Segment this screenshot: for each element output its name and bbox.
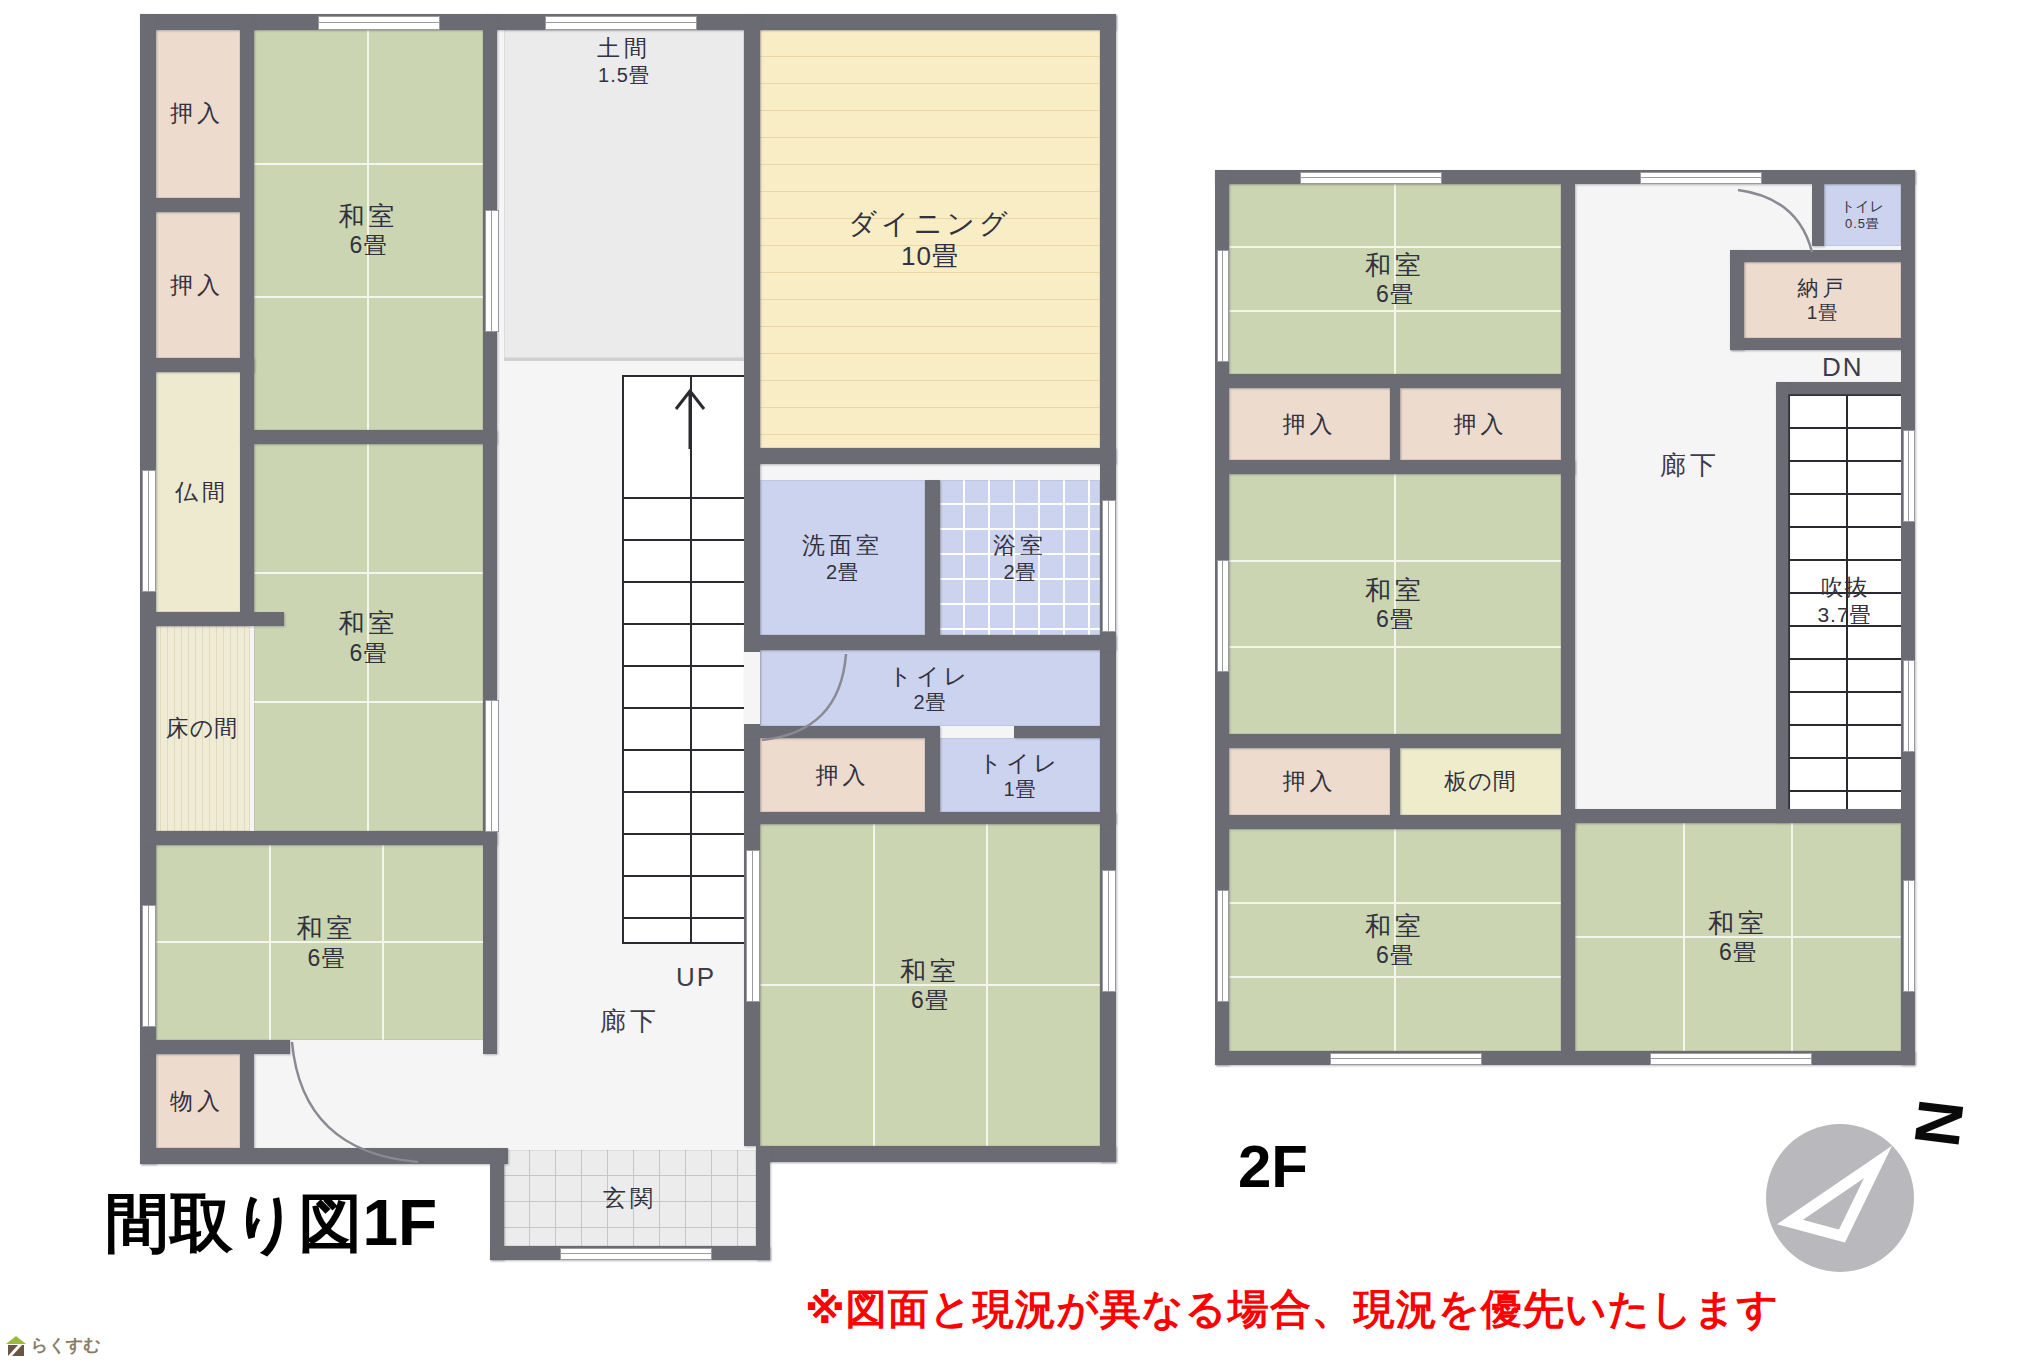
window-marker (1903, 880, 1915, 992)
compass-north-letter: N (1900, 1096, 1979, 1151)
window-marker (142, 470, 156, 592)
room-itanoma: 板の間 (1400, 748, 1561, 815)
room-monoire: 物入 (154, 1054, 240, 1148)
wall-segment (925, 738, 940, 812)
window-marker (1217, 890, 1229, 1002)
wall-segment (140, 1040, 290, 1054)
wall-segment (1014, 726, 1100, 738)
window-marker (485, 210, 499, 332)
room-name: 和室 (297, 912, 357, 945)
logo-text: らくすむ (31, 1334, 101, 1357)
wall-segment (154, 198, 240, 212)
room-name: 和室 (1365, 249, 1425, 282)
stair-steps (624, 457, 758, 942)
room-size: 2畳 (913, 690, 946, 714)
window-marker (746, 850, 760, 1002)
room-name: 納戸 (1798, 275, 1848, 301)
wall-segment (756, 1146, 1116, 1162)
room-size: 6畳 (1376, 606, 1414, 634)
window-marker (1102, 500, 1116, 632)
room-size: 6畳 (1719, 939, 1757, 967)
wall-segment (140, 1148, 508, 1164)
room-fukinuke-label: 吹抜 3.7畳 (1788, 550, 1901, 650)
room-name: 浴室 (993, 531, 1047, 560)
room-washitsu-1f-mid: 和室 6畳 (254, 444, 483, 831)
window-marker (1903, 660, 1915, 752)
up-label: UP (676, 962, 716, 993)
room-size: 2畳 (1003, 560, 1036, 584)
window-marker (1217, 560, 1229, 672)
room-name: ダイニング (848, 206, 1011, 241)
room-oshiire-2f-b: 押入 (1400, 388, 1561, 460)
room-name: 和室 (339, 200, 399, 233)
room-washitsu-2f-bottomleft: 和室 6畳 (1229, 829, 1561, 1051)
room-oshiire-2f-a: 押入 (1229, 388, 1390, 460)
wall-segment (1730, 250, 1744, 350)
disclaimer-note: ※図面と現況が異なる場合、現況を優先いたします (805, 1282, 1779, 1337)
floor1-title: 間取り図1F (105, 1180, 437, 1267)
room-name: トイレ (1841, 198, 1884, 216)
wall-segment (1812, 184, 1824, 246)
wall-segment (154, 358, 254, 372)
window-marker (485, 700, 499, 832)
wall-segment (140, 831, 497, 845)
room-size: 3.7畳 (1817, 602, 1871, 627)
wall-segment (490, 1148, 504, 1260)
room-washitsu-1f-bottomright: 和室 6畳 (760, 824, 1100, 1146)
wall-segment (1776, 382, 1788, 822)
window-marker (1217, 250, 1229, 362)
door-marker (560, 1248, 712, 1260)
room-name: 押入 (1283, 767, 1337, 796)
wall-segment (1390, 748, 1400, 815)
room-size: 2畳 (826, 560, 859, 584)
room-size: 6畳 (308, 945, 346, 973)
room-name: 押入 (170, 271, 224, 300)
door-opening (744, 652, 760, 724)
wall-segment (744, 448, 1116, 464)
room-washitsu-1f-bottomleft: 和室 6畳 (156, 845, 497, 1040)
wall-segment (1390, 388, 1400, 460)
room-size: 6畳 (350, 640, 388, 668)
wall-segment (756, 1146, 770, 1260)
wall-segment (1776, 382, 1901, 394)
wall-segment (744, 635, 1116, 650)
room-name: 和室 (1365, 910, 1425, 943)
wall-segment (154, 612, 284, 626)
room-oshiire-2f-c: 押入 (1229, 748, 1390, 815)
wall-segment (1730, 338, 1901, 350)
wall-segment (240, 14, 254, 614)
window-marker (1102, 870, 1116, 992)
room-genkan: 玄関 (504, 1150, 756, 1246)
room-yokushitsu: 浴室 2畳 (940, 480, 1100, 635)
stairs-1f (622, 375, 760, 944)
room-washitsu-2f-bottomright: 和室 6畳 (1575, 823, 1901, 1051)
room-name: 土間 (597, 34, 651, 63)
room-name: 押入 (170, 99, 224, 128)
room-name: 玄関 (603, 1184, 657, 1213)
room-toilet-1jo: トイレ 1畳 (940, 738, 1100, 812)
room-name: 押入 (816, 761, 870, 790)
room-tokonoma: 床の間 (154, 626, 250, 831)
room-nando: 納戸 1畳 (1744, 262, 1901, 338)
room-butsuma: 仏間 (154, 372, 250, 612)
room-size: 1.5畳 (598, 63, 650, 87)
wall-segment (1229, 734, 1561, 748)
room-size: 10畳 (901, 241, 959, 272)
room-washitsu-1f-top: 和室 6畳 (254, 30, 483, 430)
room-size: 6畳 (1376, 942, 1414, 970)
room-name: 物入 (170, 1087, 224, 1116)
room-name: 和室 (339, 607, 399, 640)
room-washitsu-2f-topleft: 和室 6畳 (1229, 184, 1561, 374)
wall-segment (1730, 250, 1901, 262)
floor2-title: 2F (1238, 1132, 1308, 1201)
room-washitsu-2f-mid: 和室 6畳 (1229, 474, 1561, 734)
compass-icon (1762, 1118, 1922, 1278)
wall-segment (925, 480, 940, 635)
wall-segment (1575, 809, 1901, 823)
room-name: 仏間 (175, 478, 229, 507)
window-marker (318, 16, 440, 30)
room-name: 床の間 (166, 714, 239, 743)
room-name: トイレ (979, 749, 1062, 778)
wall-segment (1561, 184, 1575, 1051)
window-marker (1640, 172, 1762, 184)
room-dining: ダイニング 10畳 (760, 30, 1100, 448)
room-size: 1畳 (1807, 302, 1839, 325)
wall-segment (240, 1054, 254, 1148)
room-oshiire-1f-c: 押入 (760, 738, 925, 812)
house-icon (6, 1336, 26, 1356)
corridor-label-2f: 廊下 (1660, 448, 1720, 483)
room-oshiire-1f-b: 押入 (154, 212, 240, 358)
room-name: 押入 (1283, 410, 1337, 439)
room-name: 洗面室 (802, 531, 883, 560)
room-name: 和室 (1708, 907, 1768, 940)
dn-label: DN (1822, 352, 1864, 383)
room-size: 0.5畳 (1845, 216, 1880, 232)
wall-segment (1229, 460, 1575, 474)
room-name: 吹抜 (1821, 573, 1869, 602)
wall-segment (240, 430, 497, 444)
room-size: 6畳 (1376, 281, 1414, 309)
corridor-label-1f: 廊下 (600, 1004, 660, 1039)
room-name: 板の間 (1444, 767, 1517, 796)
room-name: 和室 (900, 955, 960, 988)
window-marker (1330, 1053, 1482, 1065)
room-doma: 土間 1.5畳 (504, 30, 744, 358)
window-marker (545, 16, 697, 30)
doma-edge (504, 358, 744, 361)
room-oshiire-1f-a: 押入 (154, 28, 240, 198)
room-name: トイレ (889, 662, 972, 691)
stairs-up-arrow-icon (668, 383, 712, 453)
room-size: 6畳 (350, 232, 388, 260)
wall-segment (1229, 374, 1561, 388)
wall-segment (1229, 815, 1575, 829)
room-name: 押入 (1454, 410, 1508, 439)
wall-segment (483, 14, 497, 1054)
floorplan-canvas: 押入 押入 仏間 床の間 和室 6畳 和室 6畳 和室 6畳 物入 土間 1.5… (0, 0, 2024, 1368)
logo: らくすむ (6, 1334, 101, 1357)
window-marker (1903, 430, 1915, 522)
room-size: 6畳 (911, 987, 949, 1015)
room-senmenshitsu: 洗面室 2畳 (760, 480, 925, 635)
wall-segment (744, 812, 1116, 824)
room-size: 1畳 (1003, 777, 1036, 801)
window-marker (1300, 172, 1442, 184)
wall-segment (744, 726, 940, 738)
room-toilet-2f: トイレ 0.5畳 (1824, 184, 1901, 246)
window-marker (1650, 1053, 1812, 1065)
room-name: 和室 (1365, 574, 1425, 607)
window-marker (142, 905, 156, 1027)
room-toilet-2jo: トイレ 2畳 (760, 650, 1100, 726)
